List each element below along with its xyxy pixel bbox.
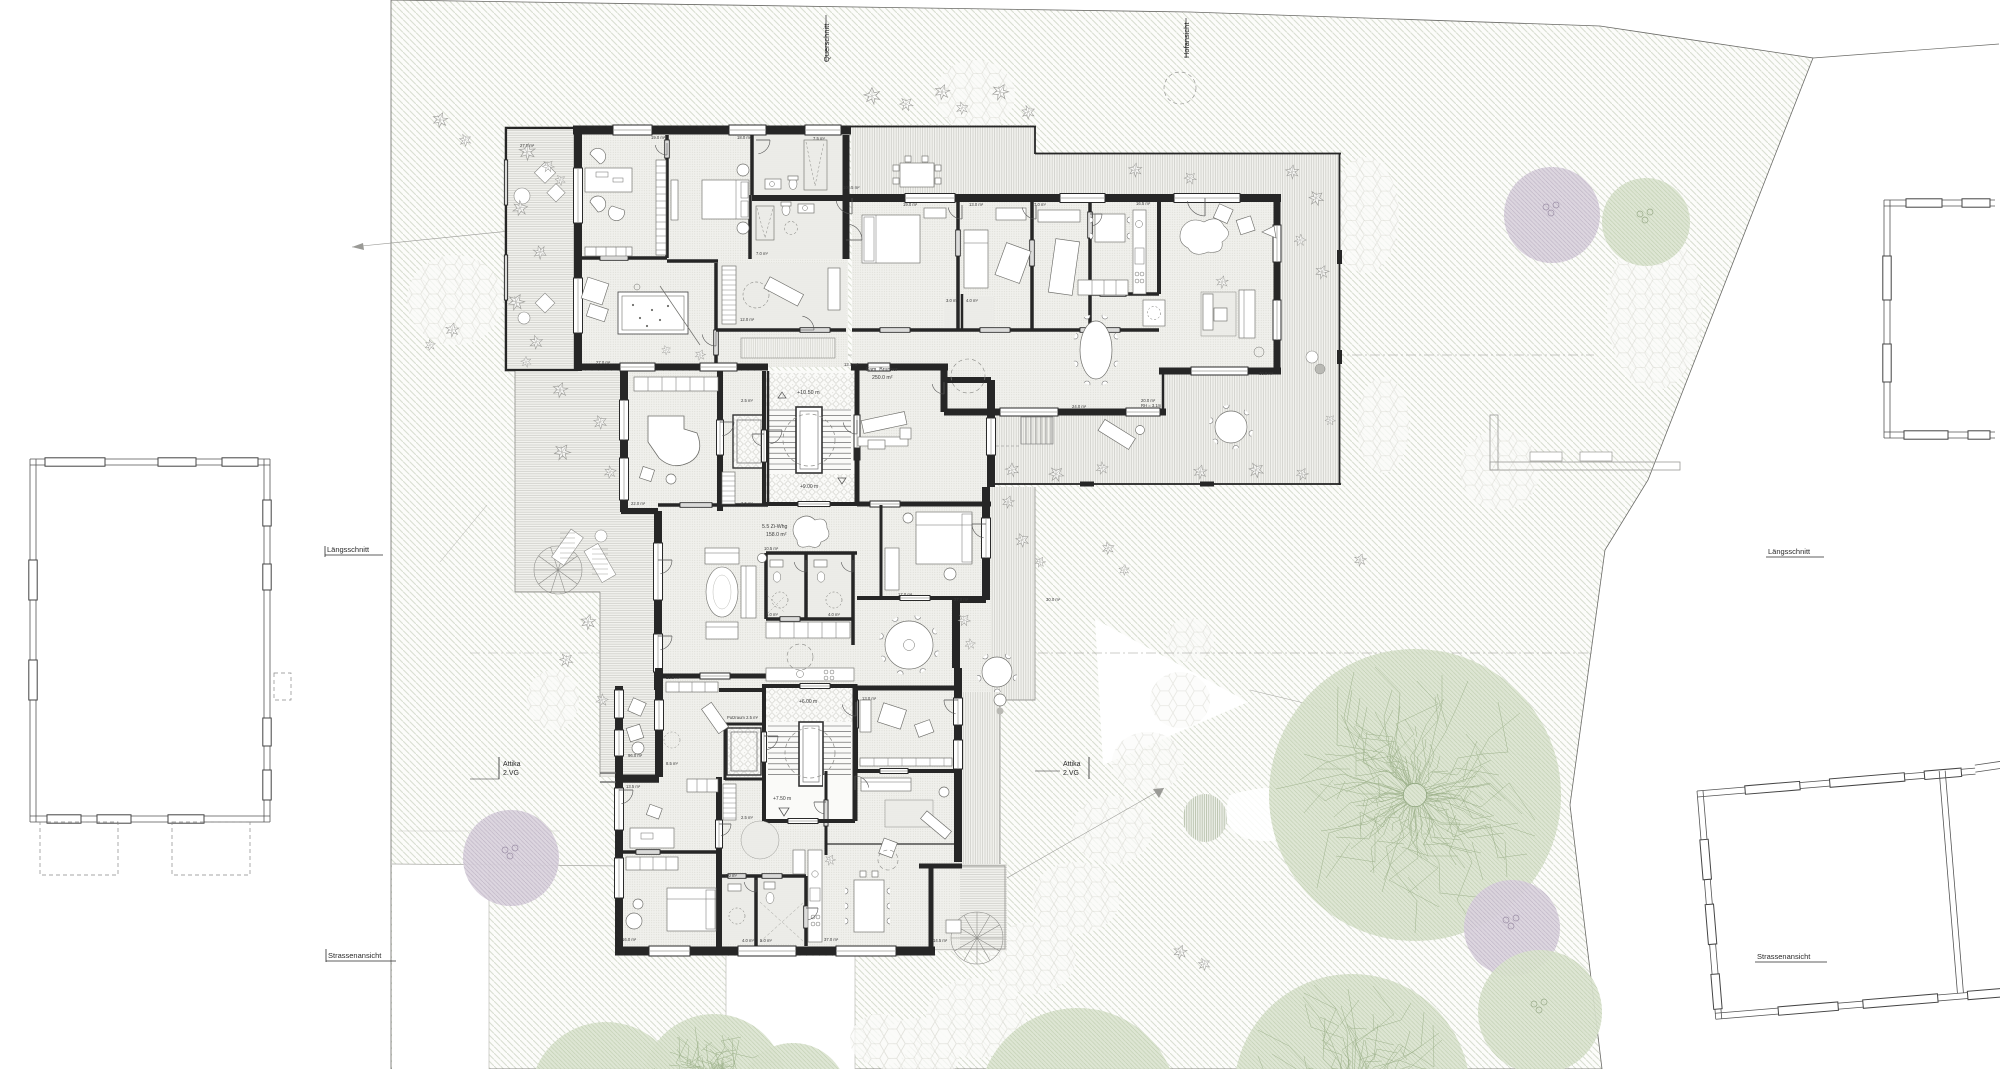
svg-text:4.0 m²: 4.0 m²: [966, 298, 978, 303]
svg-text:Putzraum 2.5 m²: Putzraum 2.5 m²: [727, 715, 759, 720]
svg-text:13.0 m²: 13.0 m²: [844, 362, 859, 367]
svg-text:2.5 m²: 2.5 m²: [741, 398, 753, 403]
svg-text:4.0 m²: 4.0 m²: [828, 612, 840, 617]
svg-text:5.0 m²: 5.0 m²: [766, 612, 778, 617]
svg-text:7.5 m²: 7.5 m²: [813, 136, 825, 141]
svg-text:10.5 m²: 10.5 m²: [764, 546, 779, 551]
svg-text:21.5 m²: 21.5 m²: [666, 675, 681, 680]
svg-text:106.5 m²: 106.5 m²: [843, 185, 860, 190]
svg-text:27.0 m²: 27.0 m²: [954, 597, 969, 602]
svg-text:13.0 m²: 13.0 m²: [862, 696, 877, 701]
svg-text:18.0 m²: 18.0 m²: [737, 135, 752, 140]
svg-text:96.0 m²: 96.0 m²: [628, 753, 643, 758]
svg-text:5.0 m²: 5.0 m²: [760, 938, 772, 943]
svg-text:14.5 m²: 14.5 m²: [933, 938, 948, 943]
svg-text:12.0 m²: 12.0 m²: [740, 317, 755, 322]
svg-text:3.0 m²: 3.0 m²: [946, 298, 958, 303]
svg-text:13.5 m²: 13.5 m²: [626, 784, 641, 789]
svg-text:27.0 m²: 27.0 m²: [596, 360, 611, 365]
svg-text:Attika: Attika: [503, 761, 521, 768]
svg-text:13.0 m²: 13.0 m²: [969, 202, 984, 207]
svg-text:7.0 m²: 7.0 m²: [756, 251, 768, 256]
svg-text:2.5 m²: 2.5 m²: [741, 815, 753, 820]
svg-text:36.0 m²: 36.0 m²: [1259, 371, 1274, 376]
svg-text:Strassenansicht: Strassenansicht: [1757, 952, 1811, 961]
svg-text:7.0 m²: 7.0 m²: [1034, 202, 1046, 207]
svg-text:19.0 m²: 19.0 m²: [651, 135, 666, 140]
svg-text:+9.00 m: +9.00 m: [800, 484, 818, 490]
svg-text:22.0 m²: 22.0 m²: [631, 501, 646, 506]
svg-text:2.VG: 2.VG: [503, 770, 519, 777]
svg-text:+6.00 m: +6.00 m: [799, 699, 817, 705]
svg-text:Hofansicht: Hofansicht: [1182, 22, 1191, 58]
svg-text:+10.50 m: +10.50 m: [797, 390, 820, 396]
svg-text:Querschnitt: Querschnitt: [822, 23, 831, 62]
svg-text:37.0 m²: 37.0 m²: [824, 937, 839, 942]
svg-text:RH = 3.1m: RH = 3.1m: [1141, 403, 1162, 408]
svg-text:Strassenansicht: Strassenansicht: [328, 951, 382, 960]
svg-text:Längsschnitt: Längsschnitt: [327, 545, 370, 554]
svg-text:250.0 m²: 250.0 m²: [872, 375, 893, 381]
svg-text:30.0 m²: 30.0 m²: [1046, 597, 1061, 602]
svg-text:19.0 m²: 19.0 m²: [903, 202, 918, 207]
svg-text:16.0 m²: 16.0 m²: [622, 937, 637, 942]
svg-text:5.5 Zi-Whg: 5.5 Zi-Whg: [762, 524, 787, 530]
svg-text:Längsschnitt: Längsschnitt: [1768, 547, 1811, 556]
svg-text:24.0 m²: 24.0 m²: [1072, 404, 1087, 409]
svg-text:+7.50 m: +7.50 m: [773, 796, 791, 802]
svg-text:Attika: Attika: [1063, 761, 1081, 768]
svg-text:16.5 m²: 16.5 m²: [1136, 201, 1151, 206]
svg-text:2.5 m²: 2.5 m²: [741, 501, 753, 506]
svg-text:Fam. Brunner: Fam. Brunner: [866, 367, 898, 373]
svg-text:4.0 m²: 4.0 m²: [742, 938, 754, 943]
svg-text:2.VG: 2.VG: [1063, 770, 1079, 777]
svg-text:6.0 m²: 6.0 m²: [725, 873, 737, 878]
svg-text:17.0 m²: 17.0 m²: [898, 592, 913, 597]
svg-text:8.5 m²: 8.5 m²: [666, 761, 678, 766]
svg-text:158.0 m²: 158.0 m²: [766, 532, 787, 538]
